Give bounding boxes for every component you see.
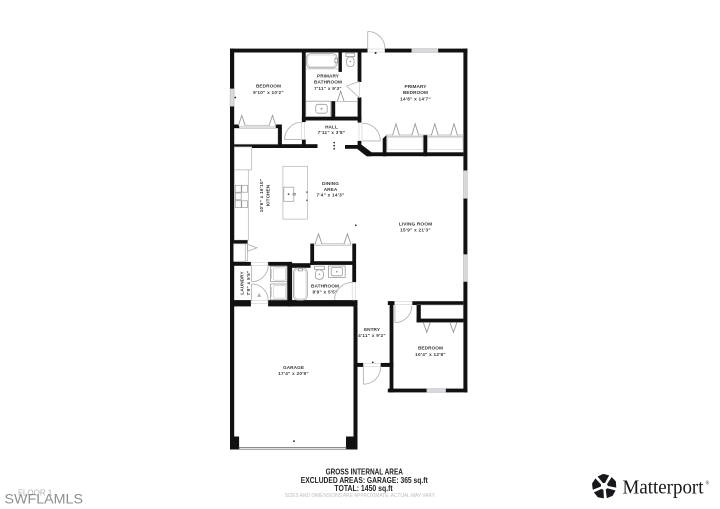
svg-text:GARAGE: GARAGE [283, 365, 304, 370]
svg-text:LAUNDRY: LAUNDRY [240, 271, 245, 295]
svg-text:8'9" x 5'5": 8'9" x 5'5" [312, 289, 337, 294]
svg-text:®: ® [706, 481, 710, 487]
svg-text:TOTAL: 1450 sq.ft: TOTAL: 1450 sq.ft [334, 483, 392, 493]
svg-text:15'9" x 21'3": 15'9" x 21'3" [400, 228, 431, 233]
svg-text:4'11" x 9'2": 4'11" x 9'2" [358, 333, 386, 338]
svg-text:7'11" x 9'3": 7'11" x 9'3" [314, 86, 342, 91]
svg-text:14'8" x 14'7": 14'8" x 14'7" [400, 96, 431, 101]
svg-text:BATHROOM: BATHROOM [311, 283, 339, 288]
svg-text:17'4" x 20'9": 17'4" x 20'9" [278, 371, 309, 376]
svg-text:PRIMARY: PRIMARY [404, 84, 427, 89]
svg-text:KITCHEN: KITCHEN [266, 184, 271, 206]
svg-text:BEDROOM: BEDROOM [418, 346, 443, 351]
svg-text:SIZES AND DIMENSIONS ARE APPRO: SIZES AND DIMENSIONS ARE APPROXIMATE, AC… [285, 493, 435, 499]
svg-text:10'4" x 12'8": 10'4" x 12'8" [415, 352, 446, 357]
svg-text:BEDROOM: BEDROOM [256, 84, 281, 89]
svg-text:10'6" x 16'10": 10'6" x 16'10" [259, 179, 264, 213]
svg-text:AREA: AREA [324, 187, 338, 192]
svg-text:HALL: HALL [325, 124, 338, 129]
svg-text:BATHROOM: BATHROOM [314, 80, 342, 85]
svg-text:7'4" x 14'3": 7'4" x 14'3" [317, 193, 345, 198]
svg-text:7'8" x 5'5": 7'8" x 5'5" [246, 270, 251, 295]
svg-text:BEDROOM: BEDROOM [403, 90, 428, 95]
svg-text:SWFLAMLS: SWFLAMLS [5, 491, 83, 506]
svg-text:9'10" x 10'2": 9'10" x 10'2" [253, 90, 284, 95]
svg-text:DINING: DINING [322, 181, 339, 186]
svg-text:7'11" x 3'8": 7'11" x 3'8" [318, 130, 346, 135]
svg-text:Matterport: Matterport [623, 478, 705, 499]
svg-text:ENTRY: ENTRY [364, 327, 381, 332]
svg-text:PRIMARY: PRIMARY [317, 74, 340, 79]
svg-text:LIVING ROOM: LIVING ROOM [399, 221, 433, 226]
